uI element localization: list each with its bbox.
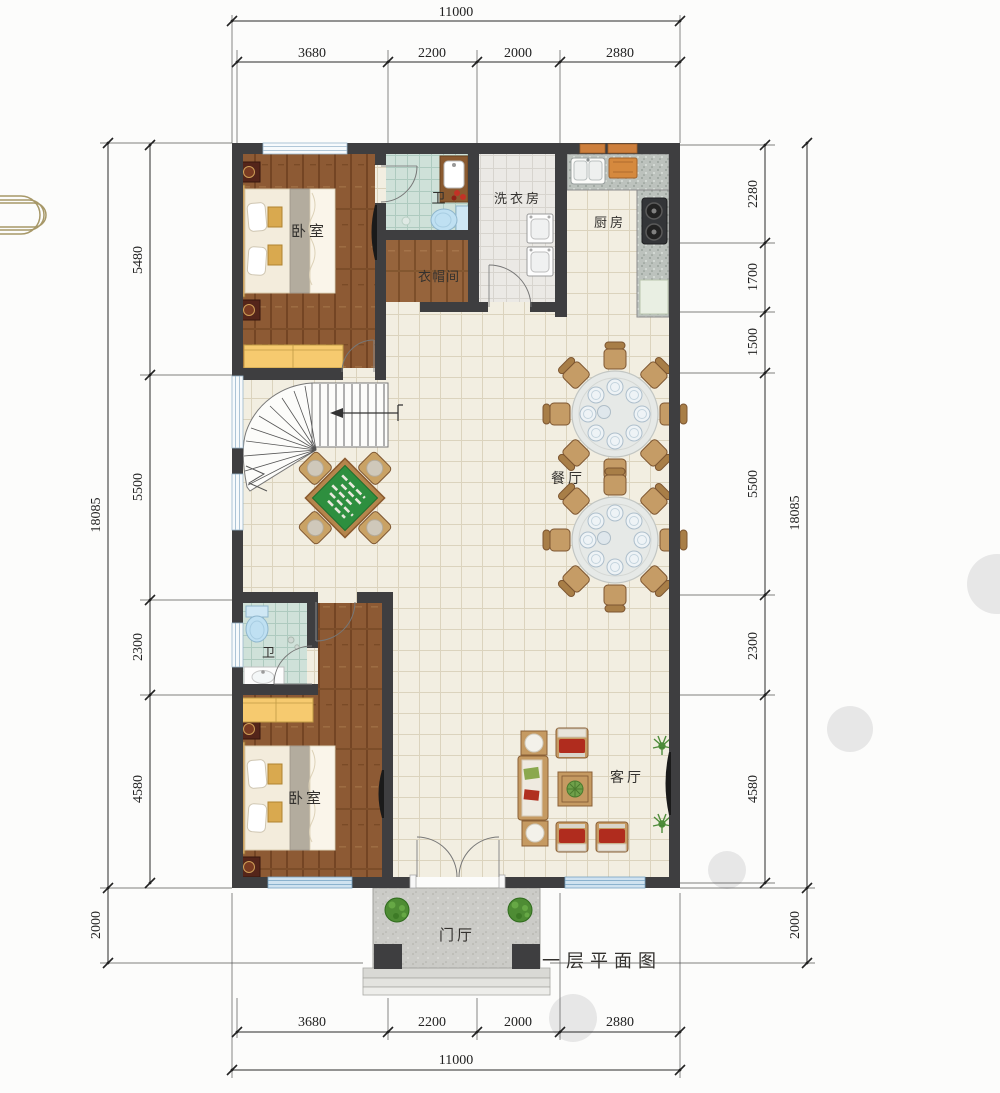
dim-left-seg: 2300 — [131, 633, 146, 661]
floor-plan-canvas: 卧室 卫 洗衣房 厨房 衣帽间 餐厅 卫 卧室 客厅 门厅 一层平面图 — [0, 0, 1000, 1093]
dining-chair — [604, 468, 626, 495]
dim-bottom-seg: 3680 — [298, 1015, 326, 1030]
dim-left-seg: 5500 — [131, 473, 146, 501]
label-bath-top: 卫 — [432, 192, 449, 207]
porch-post-right — [512, 944, 540, 969]
dim-right-seg: 1700 — [746, 263, 761, 291]
decorative-gold-arcs — [0, 196, 46, 234]
label-foyer: 门厅 — [439, 927, 475, 944]
stair-flight — [312, 383, 388, 447]
window-left-stair-1 — [232, 376, 243, 448]
dim-bottom-seg: 2880 — [606, 1015, 634, 1030]
dining-chair — [543, 403, 570, 425]
dining-chair — [604, 585, 626, 612]
label-bath-bottom: 卫 — [262, 645, 278, 660]
cutting-board — [609, 158, 637, 178]
label-bedroom-top: 卧室 — [291, 223, 327, 240]
toilet-bowl — [246, 616, 268, 642]
dining-set-2 — [543, 468, 687, 612]
wardrobe-bottom — [240, 698, 313, 722]
dim-top-seg: 3680 — [298, 46, 326, 61]
toilet-tank — [246, 606, 268, 617]
window-left-bath — [232, 623, 243, 667]
label-dining: 餐厅 — [551, 471, 585, 487]
dining-chair — [543, 529, 570, 551]
window-top-bedroom — [263, 143, 347, 154]
mahjong-set — [298, 451, 393, 546]
window-left-stair-2 — [232, 474, 243, 530]
kitchen-vent — [580, 144, 637, 153]
toilet-tank — [456, 206, 469, 234]
teapot — [598, 532, 611, 545]
dim-top-seg: 2880 — [606, 46, 634, 61]
dining-set-1 — [543, 342, 687, 486]
dim-left-total: 18085 — [89, 498, 104, 533]
dim-right-seg: 1500 — [746, 328, 761, 356]
dim-left-seg: 5480 — [131, 246, 146, 274]
dim-bottom-seg: 2200 — [418, 1015, 446, 1030]
floor-plan-drawing: 卧室 卫 洗衣房 厨房 衣帽间 餐厅 卫 卧室 客厅 门厅 一层平面图 — [0, 0, 1000, 1093]
dims-right: 2280 1700 1500 5500 2300 4580 18085 2000 — [746, 180, 803, 939]
dim-right-total: 18085 — [788, 496, 803, 531]
dims-left: 5480 5500 2300 4580 18085 2000 — [89, 246, 146, 939]
dim-right-seg: 2280 — [746, 180, 761, 208]
label-bedroom-bottom: 卧室 — [288, 790, 324, 807]
dim-bottom-seg: 2000 — [504, 1015, 532, 1030]
dim-bottom-total: 11000 — [439, 1053, 473, 1068]
label-kitchen: 厨房 — [594, 215, 626, 230]
shrub-left — [385, 898, 409, 922]
label-living: 客厅 — [610, 769, 644, 786]
dim-right-porch: 2000 — [788, 911, 803, 939]
dims-top: 11000 3680 2200 2000 2880 — [298, 5, 634, 61]
dim-right-seg: 2300 — [746, 632, 761, 660]
label-laundry: 洗衣房 — [494, 191, 542, 206]
dim-right-seg: 4580 — [746, 775, 761, 803]
porch-step-3 — [363, 987, 550, 995]
shrub-right — [508, 898, 532, 922]
window-bottom-bedroom — [268, 877, 352, 888]
dim-right-seg: 5500 — [746, 470, 761, 498]
dim-left-porch: 2000 — [89, 911, 104, 939]
fridge — [640, 280, 668, 314]
window-bottom-living — [565, 877, 645, 888]
dim-left-seg: 4580 — [131, 775, 146, 803]
dim-top-seg: 2000 — [504, 46, 532, 61]
teapot — [598, 406, 611, 419]
dim-top-seg: 2200 — [418, 46, 446, 61]
wardrobe-top — [244, 345, 343, 368]
dining-chair — [604, 342, 626, 369]
porch-post-left — [374, 944, 402, 969]
dim-top-total: 11000 — [439, 5, 473, 20]
label-cloakroom: 衣帽间 — [418, 269, 460, 284]
porch-step-2 — [363, 978, 550, 987]
porch-step-1 — [363, 968, 550, 978]
